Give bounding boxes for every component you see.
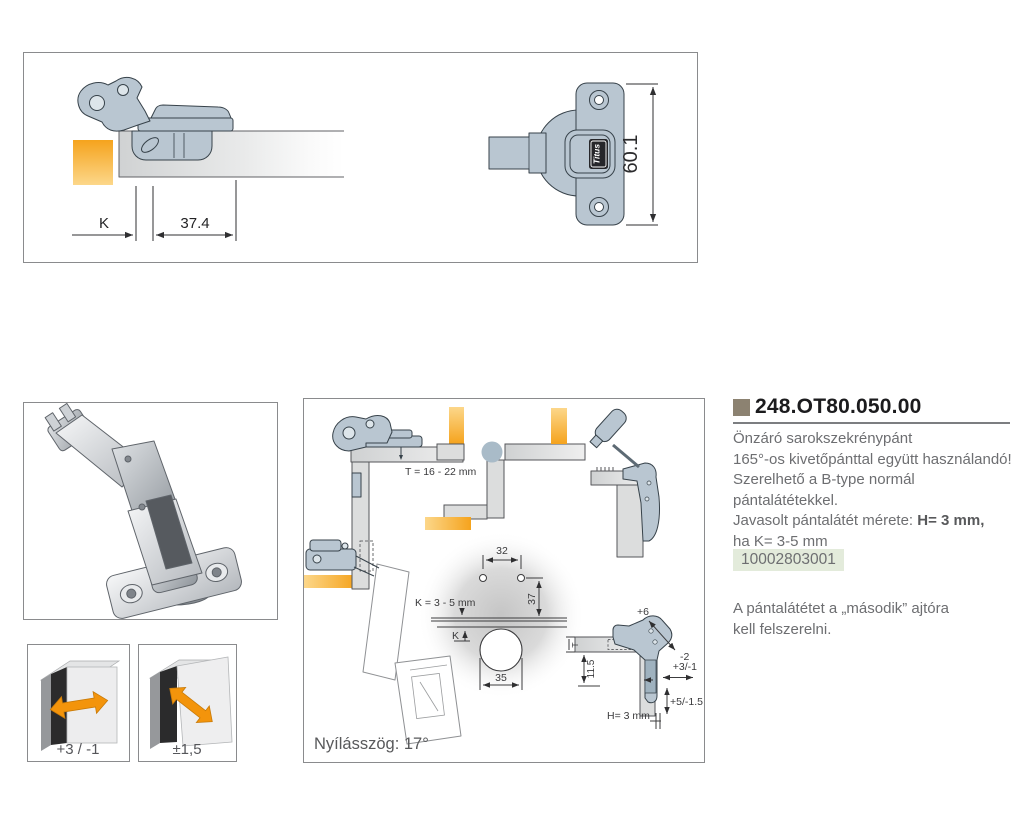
recommended-spacer-bold: H= 3 mm, <box>917 512 984 529</box>
hinge-cup-section <box>132 131 212 160</box>
dim-depth-label: 37.4 <box>180 215 209 232</box>
hinge-photo-illustration <box>41 403 243 619</box>
door-edge-block <box>73 140 113 185</box>
screwdriver-figure <box>587 406 659 557</box>
desc-line: pántalátétekkel. <box>733 491 1024 512</box>
pivot-circle <box>482 442 503 463</box>
side-adjustment-icon: ±1,5 <box>139 645 236 761</box>
application-diagrams: T = 16 - 22 mm <box>304 399 704 762</box>
thread-marks <box>597 467 613 471</box>
order-code-badge: 10002803001 <box>733 549 844 571</box>
note-line: A pántalátétet a „második” ajtóra <box>733 599 1024 620</box>
side-view-dimensions <box>72 180 236 241</box>
screw-hole-top <box>595 96 604 105</box>
screw-hole-right <box>518 575 525 582</box>
note-line: kell felszerelni. <box>733 620 1024 641</box>
screw-hole-bottom <box>595 203 604 212</box>
panel-thickness-label: T = 16 - 22 mm <box>405 466 477 478</box>
bullet-square-icon <box>733 399 750 416</box>
product-photo <box>24 403 277 619</box>
adj-height-label: +5/-1.5 <box>670 696 703 708</box>
product-photo-box <box>23 402 278 620</box>
hinge-front-view: Titus 60.1 <box>489 83 658 225</box>
reveal-k-label: K <box>452 630 459 642</box>
top-drawing-panel: K 37.4 Titus <box>23 52 698 263</box>
hole-offset-label: 37 <box>526 593 538 605</box>
adj-side-label: +3/-1 <box>673 661 697 673</box>
hinge-side-view <box>73 77 344 185</box>
depth-adjustment-icon: +3 / -1 <box>28 645 129 761</box>
screwdriver-handle <box>587 406 629 450</box>
dim-k-label: K <box>99 215 109 232</box>
opening-angle-label: Nyílásszög: 17° <box>314 735 429 753</box>
side-adjust-label: ±1,5 <box>172 741 201 758</box>
door-edge-strip <box>304 575 356 588</box>
door-plan-top-left <box>449 407 464 444</box>
reveal-range-label: K = 3 - 5 mm <box>415 597 476 609</box>
spacer-height-label: H= 3 mm <box>607 710 650 722</box>
cabinet-side-sd <box>617 485 643 557</box>
depth-adjust-label: +3 / -1 <box>57 741 100 758</box>
side-adjustment-icon-box: ±1,5 <box>138 644 237 762</box>
dim-height-label: 60.1 <box>620 135 642 174</box>
mounting-note: A pántalátétet a „második” ajtóra kell f… <box>733 599 1024 640</box>
desc-line: Szerelhető a B-type normál <box>733 470 1024 491</box>
titus-logo-text: Titus <box>592 144 602 164</box>
product-title-row: 248.OT80.050.00 <box>733 395 1013 419</box>
hinge-arm-plate <box>138 118 233 131</box>
cup-diameter-label: 35 <box>495 672 507 684</box>
catalog-page: K 37.4 Titus <box>0 0 1024 834</box>
adjustment-figure: T 11.5 +6 -2 +3/-1 +5/-1.5 H= 3 mm <box>566 606 703 729</box>
screwdriver-shaft <box>613 445 639 467</box>
thickness-t-label: T <box>570 642 580 647</box>
plate-height-label: 11.5 <box>586 659 597 678</box>
panel-plan-right <box>505 444 585 460</box>
cabinet-side-face <box>41 674 51 751</box>
desc-line: Javasolt pántalátét mérete: H= 3 mm, <box>733 511 1024 532</box>
hole-spacing-label: 32 <box>496 545 508 557</box>
panel-plan-down <box>487 460 504 518</box>
cabinet-side-face <box>150 672 160 749</box>
product-code: 248.OT80.050.00 <box>755 395 921 419</box>
hinge-arm-front <box>489 133 546 173</box>
hinge-knuckle <box>78 77 150 131</box>
hinge-dimension-drawing: K 37.4 Titus <box>24 53 695 261</box>
cup-bore-circle <box>480 629 522 671</box>
depth-adjustment-icon-box: +3 / -1 <box>27 644 130 762</box>
adj-depth-plus-label: +6 <box>637 606 649 618</box>
title-divider <box>733 422 1010 424</box>
screw-hole-left <box>480 575 487 582</box>
door-plan-top-right <box>551 408 567 444</box>
open-door-lower <box>395 656 461 744</box>
door-gap-shadow <box>160 666 177 743</box>
door-plan-bottom-left <box>425 517 471 530</box>
plate-cross-section <box>352 473 361 497</box>
desc-line: 165°-os kivetőpánttal együtt használandó… <box>733 450 1024 471</box>
application-diagram-panel: T = 16 - 22 mm <box>303 398 705 763</box>
product-description: Önzáró sarokszekrénypánt 165°-os kivetőp… <box>733 429 1024 552</box>
desc-line: Önzáró sarokszekrénypánt <box>733 429 1024 450</box>
